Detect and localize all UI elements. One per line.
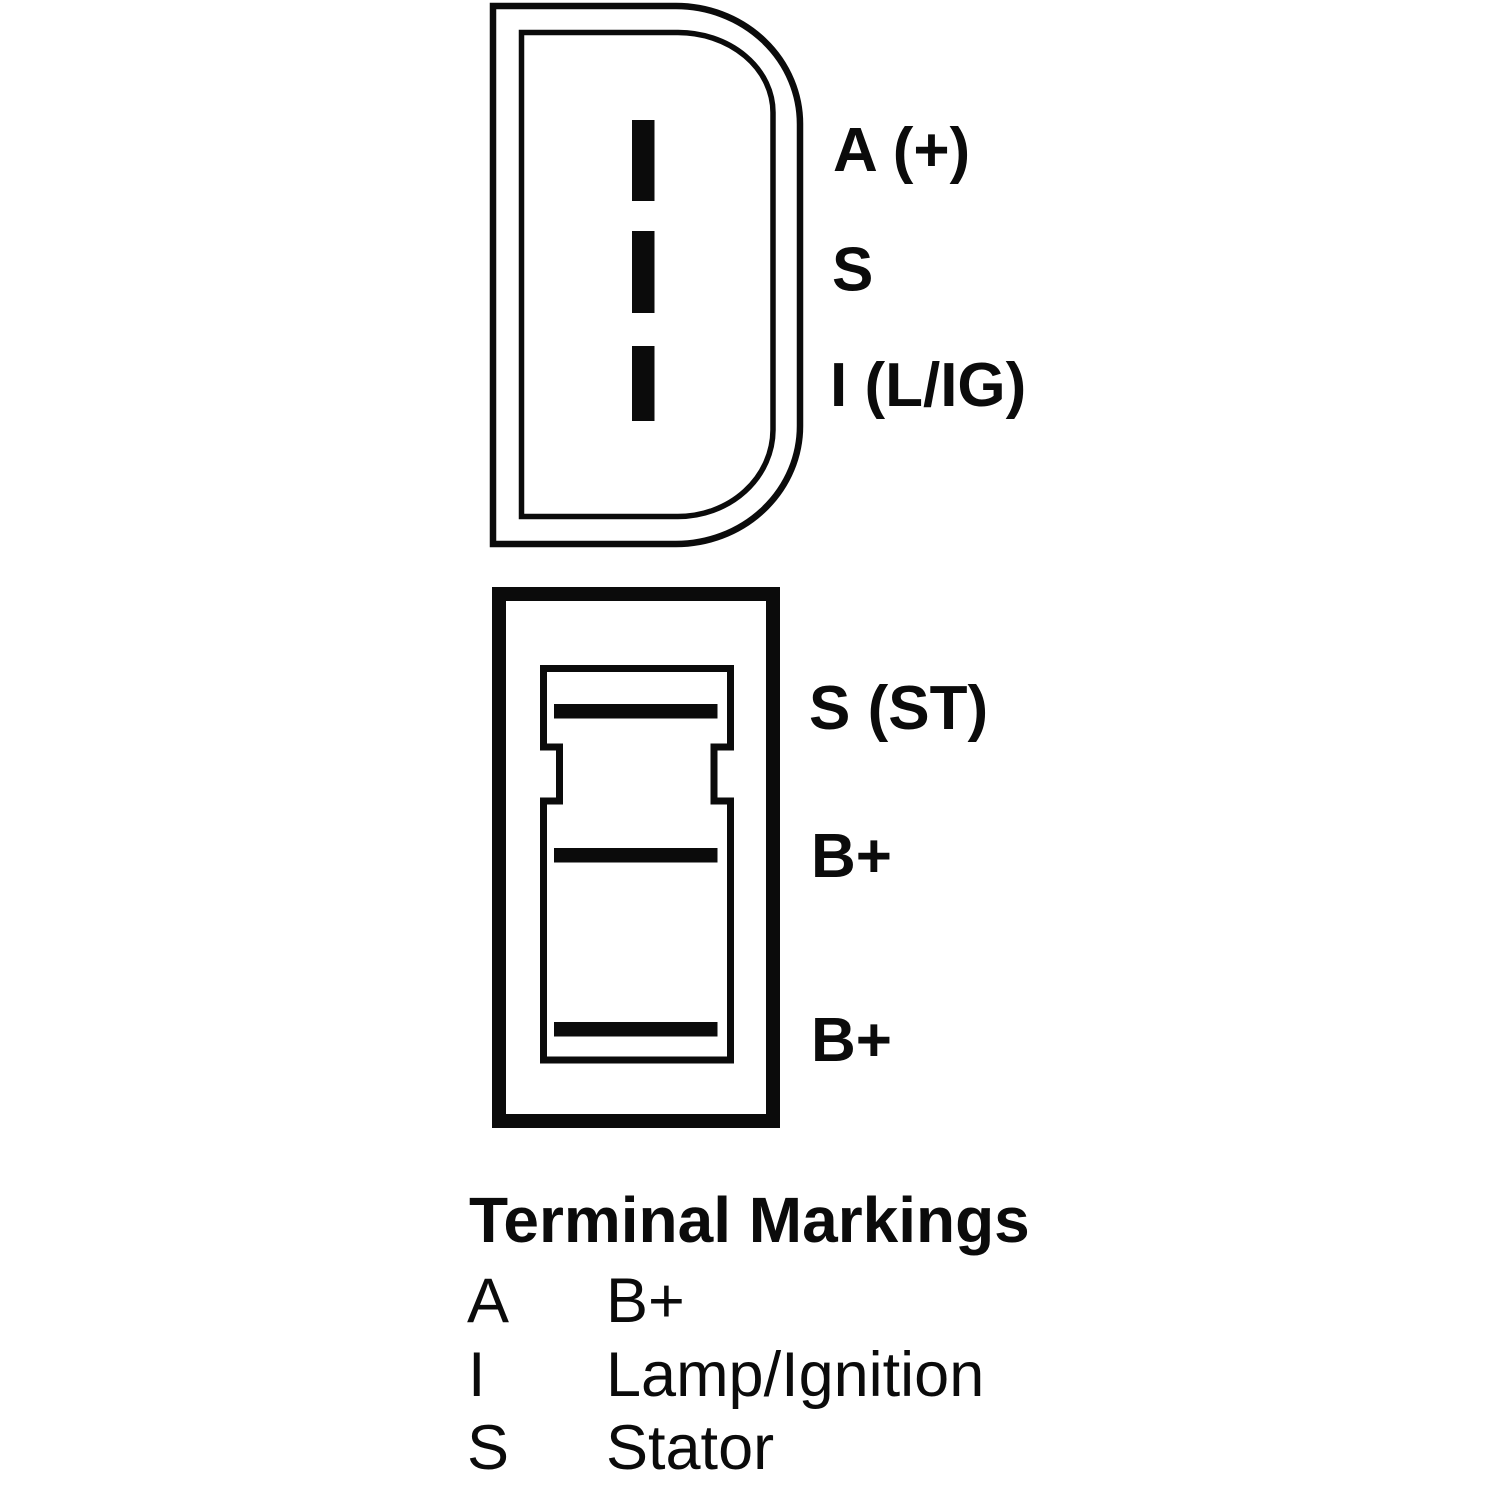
svg-text:S (ST): S (ST) [809, 674, 988, 743]
svg-text:A (+): A (+) [833, 116, 970, 185]
svg-text:Lamp/Ignition: Lamp/Ignition [606, 1340, 984, 1410]
svg-text:B+: B+ [811, 822, 892, 891]
svg-text:S: S [832, 236, 873, 305]
svg-text:A: A [467, 1266, 509, 1336]
svg-text:I: I [468, 1340, 486, 1410]
svg-text:B+: B+ [606, 1266, 685, 1336]
svg-text:I (L/IG): I (L/IG) [830, 351, 1026, 420]
svg-text:Stator: Stator [606, 1413, 774, 1483]
svg-text:B+: B+ [811, 1006, 892, 1075]
svg-text:Terminal Markings: Terminal Markings [469, 1184, 1030, 1256]
svg-text:S: S [467, 1413, 509, 1483]
